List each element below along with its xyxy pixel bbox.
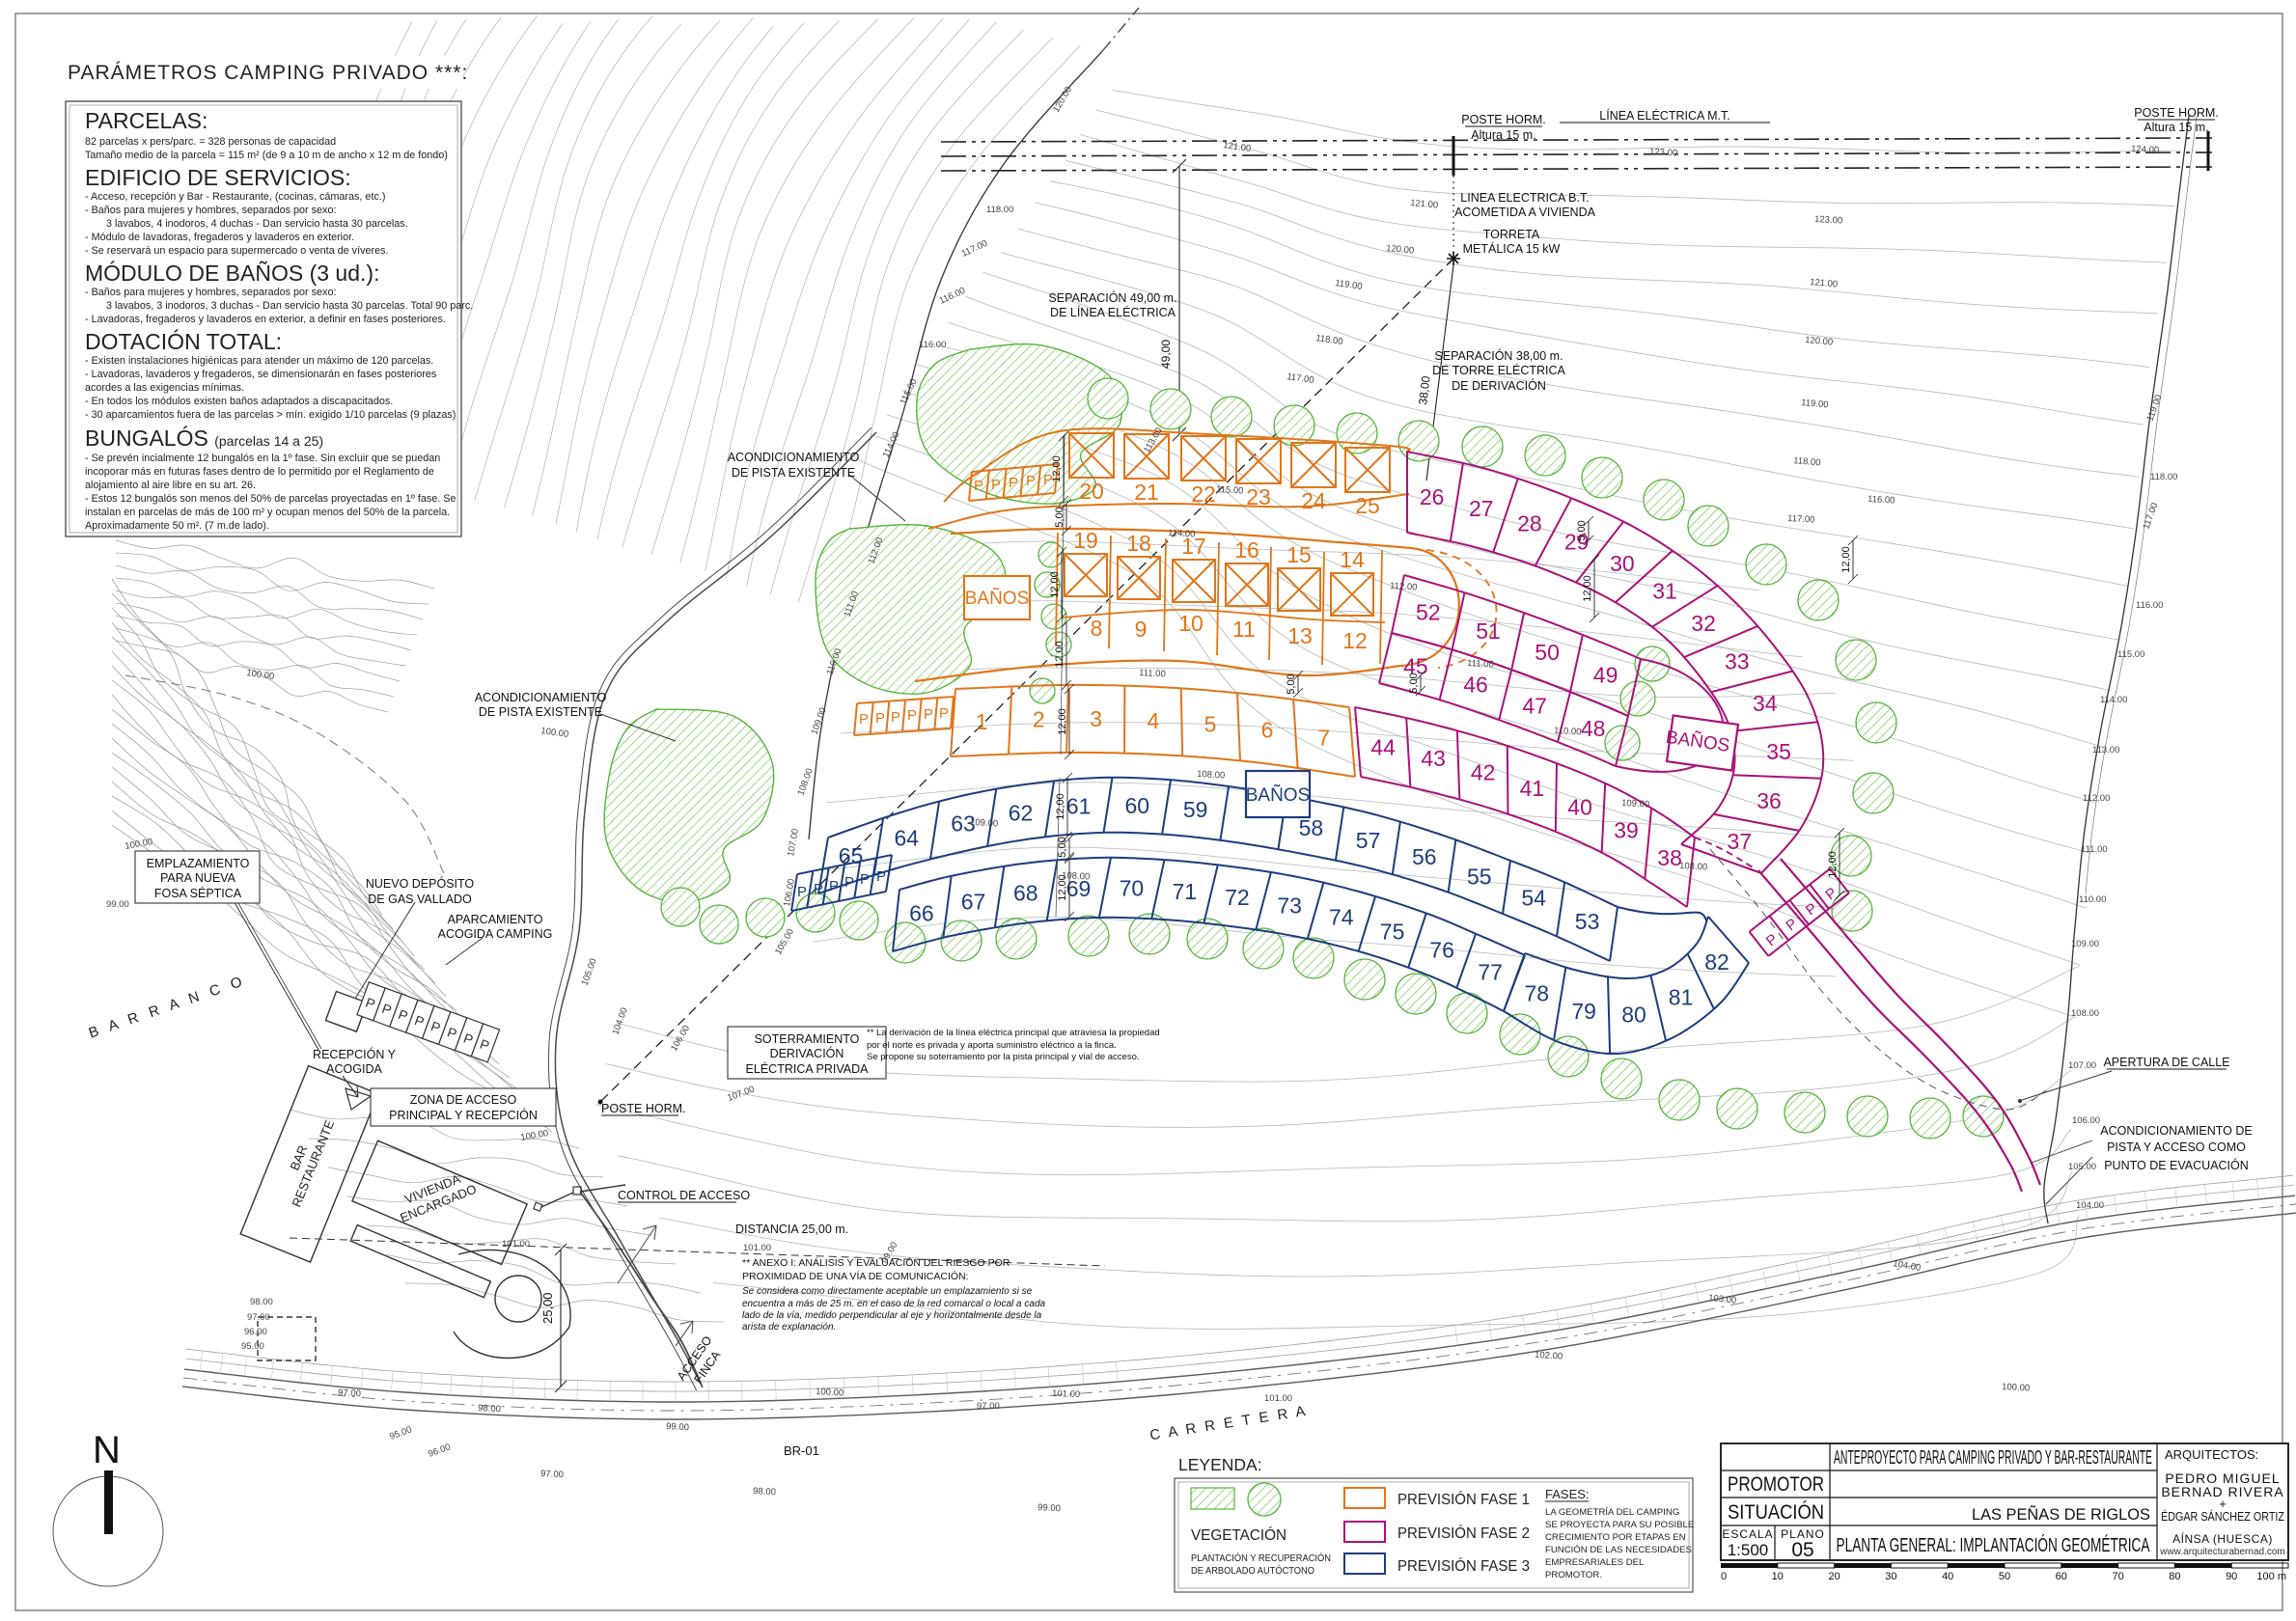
svg-text:FUNCIÓN DE LAS NECESIDADES: FUNCIÓN DE LAS NECESIDADES — [1545, 1545, 1692, 1555]
svg-text:11: 11 — [1232, 617, 1256, 642]
svg-text:ACONDICIONAMIENTO DE: ACONDICIONAMIENTO DE — [2100, 1124, 2252, 1138]
svg-text:40: 40 — [1567, 795, 1592, 820]
svg-text:99.00: 99.00 — [666, 1421, 689, 1433]
svg-text:DE TORRE ELÉCTRICA: DE TORRE ELÉCTRICA — [1432, 363, 1565, 377]
svg-text:12,00: 12,00 — [1051, 455, 1063, 482]
svg-text:- Lavadoras, lavaderos y frega: - Lavadoras, lavaderos y fregaderos, se … — [85, 369, 437, 380]
svg-text:115.00: 115.00 — [2117, 649, 2144, 660]
svg-text:116.00: 116.00 — [2136, 600, 2163, 611]
svg-text:56: 56 — [1412, 844, 1437, 869]
svg-text:ACOGIDA CAMPING: ACOGIDA CAMPING — [438, 927, 553, 941]
svg-text:DE GAS VALLADO: DE GAS VALLADO — [368, 893, 472, 906]
svg-text:P: P — [1026, 473, 1036, 489]
svg-text:CONTROL DE ACCESO: CONTROL DE ACCESO — [618, 1189, 750, 1202]
svg-text:METÁLICA 15 kW: METÁLICA 15 kW — [1463, 241, 1561, 256]
svg-text:ZONA DE ACCESO: ZONA DE ACCESO — [410, 1093, 517, 1107]
svg-text:97.00: 97.00 — [540, 1469, 564, 1480]
svg-text:APERTURA DE CALLE: APERTURA DE CALLE — [2103, 1056, 2229, 1069]
svg-text:PROMOTOR.: PROMOTOR. — [1545, 1570, 1602, 1580]
svg-text:SEPARACIÓN 49,00 m.: SEPARACIÓN 49,00 m. — [1048, 290, 1176, 305]
svg-text:101.00: 101.00 — [1264, 1393, 1292, 1404]
svg-text:114.00: 114.00 — [2100, 695, 2127, 705]
svg-text:5,00: 5,00 — [1057, 837, 1068, 857]
svg-text:ACOGIDA: ACOGIDA — [326, 1062, 382, 1076]
svg-text:73: 73 — [1277, 893, 1302, 918]
svg-text:12: 12 — [1342, 628, 1368, 653]
svg-text:3 lavabos, 4 inodoros, 4 ducha: 3 lavabos, 4 inodoros, 4 duchas - Dan se… — [106, 218, 408, 230]
svg-text:12,00: 12,00 — [1054, 641, 1065, 668]
svg-text:Se propone su soterramiento po: Se propone su soterramiento por la pista… — [867, 1052, 1140, 1062]
svg-text:1:500: 1:500 — [1728, 1541, 1769, 1559]
svg-text:123.00: 123.00 — [1649, 147, 1678, 159]
svg-text:PROMOTOR: PROMOTOR — [1728, 1473, 1824, 1496]
svg-text:- En todos los módulos existen: - En todos los módulos existen baños ada… — [85, 396, 393, 407]
svg-text:por el norte es privada y apor: por el norte es privada y aporta suminis… — [867, 1040, 1117, 1051]
svg-text:SE PROYECTA PARA SU POSIBLE: SE PROYECTA PARA SU POSIBLE — [1545, 1520, 1694, 1530]
svg-text:100.00: 100.00 — [2002, 1382, 2031, 1394]
svg-text:ACONDICIONAMIENTO: ACONDICIONAMIENTO — [475, 691, 607, 704]
svg-text:82: 82 — [1704, 949, 1729, 975]
svg-text:POSTE HORM.: POSTE HORM. — [2134, 106, 2219, 120]
svg-text:40: 40 — [1942, 1571, 1953, 1582]
svg-text:P: P — [860, 871, 870, 888]
svg-text:PLANTACIÓN Y RECUPERACIÓN: PLANTACIÓN Y RECUPERACIÓN — [1191, 1552, 1331, 1564]
svg-text:74: 74 — [1329, 904, 1354, 929]
svg-text:5,00: 5,00 — [1576, 520, 1588, 540]
svg-text:107.00: 107.00 — [2068, 1060, 2096, 1071]
svg-text:20: 20 — [1828, 1571, 1840, 1582]
svg-text:97.00: 97.00 — [338, 1387, 361, 1399]
svg-text:53: 53 — [1575, 909, 1600, 934]
svg-text:67: 67 — [961, 889, 986, 914]
svg-text:4: 4 — [1148, 708, 1160, 733]
svg-text:111.00: 111.00 — [1139, 668, 1166, 679]
svg-text:- Estos 12 bungalós son menos: - Estos 12 bungalós son menos del 50% de… — [85, 493, 456, 505]
svg-text:46: 46 — [1463, 672, 1488, 697]
svg-text:109.00: 109.00 — [2071, 939, 2099, 949]
svg-text:78: 78 — [1525, 981, 1550, 1006]
svg-text:DE DERIVACIÓN: DE DERIVACIÓN — [1452, 378, 1546, 393]
svg-text:PREVISIÓN FASE 1: PREVISIÓN FASE 1 — [1397, 1492, 1530, 1508]
svg-text:118.00: 118.00 — [2150, 472, 2177, 482]
svg-text:P: P — [939, 705, 949, 722]
svg-text:DOTACIÓN TOTAL:: DOTACIÓN TOTAL: — [85, 329, 282, 354]
svg-text:NUEVO DEPÓSITO: NUEVO DEPÓSITO — [366, 876, 475, 891]
svg-text:alojamiento al aire libre en s: alojamiento al aire libre en su art. 26. — [85, 480, 256, 491]
svg-text:EMPLAZAMIENTO: EMPLAZAMIENTO — [147, 857, 250, 870]
svg-text:30: 30 — [1610, 551, 1635, 576]
svg-text:21: 21 — [1134, 480, 1159, 505]
svg-text:50: 50 — [1999, 1571, 2010, 1582]
svg-text:lado de la vía, medido perpend: lado de la vía, medido perpendicular al … — [742, 1310, 1042, 1321]
svg-text:P: P — [924, 706, 933, 723]
svg-text:PARA NUEVA: PARA NUEVA — [160, 871, 236, 885]
svg-text:9: 9 — [1135, 617, 1148, 642]
svg-text:5,00: 5,00 — [1408, 673, 1420, 693]
svg-text:POSTE HORM.: POSTE HORM. — [1461, 113, 1546, 126]
svg-text:96.00: 96.00 — [244, 1327, 267, 1337]
svg-text:SITUACIÓN: SITUACIÓN — [1728, 1501, 1824, 1524]
svg-text:P: P — [991, 477, 1001, 493]
svg-text:12,00: 12,00 — [1827, 851, 1839, 878]
svg-text:SEPARACIÓN 38,00 m.: SEPARACIÓN 38,00 m. — [1434, 348, 1563, 363]
svg-text:110.00: 110.00 — [1554, 726, 1582, 737]
svg-text:48: 48 — [1581, 716, 1606, 741]
svg-text:49,00: 49,00 — [1159, 340, 1173, 369]
svg-text:www.arquitecturabernad.com: www.arquitecturabernad.com — [2159, 1547, 2285, 1557]
svg-text:108.00: 108.00 — [1062, 870, 1091, 883]
svg-text:124.00: 124.00 — [2131, 144, 2160, 156]
svg-text:5,00: 5,00 — [1054, 507, 1065, 527]
svg-text:- Existen instalaciones higién: - Existen instalaciones higiénicas para … — [85, 355, 433, 367]
svg-text:60: 60 — [1125, 793, 1150, 818]
svg-text:- Acceso, recepción y Bar - Re: - Acceso, recepción y Bar - Restaurante,… — [85, 191, 385, 203]
svg-text:APARCAMIENTO: APARCAMIENTO — [448, 913, 543, 926]
svg-text:98.00: 98.00 — [753, 1486, 776, 1497]
svg-text:SOTERRAMIENTO: SOTERRAMIENTO — [755, 1032, 860, 1046]
svg-text:98.00: 98.00 — [478, 1403, 501, 1415]
svg-text:0: 0 — [1721, 1571, 1727, 1582]
svg-text:LA GEOMETRÍA DEL CAMPING: LA GEOMETRÍA DEL CAMPING — [1545, 1507, 1679, 1518]
svg-text:P: P — [907, 707, 917, 724]
svg-text:- Se prevén incialmente 12 bun: - Se prevén incialmente 12 bungalós en l… — [85, 453, 440, 464]
svg-text:13: 13 — [1287, 623, 1313, 648]
svg-text:LEYENDA:: LEYENDA: — [1178, 1455, 1262, 1474]
svg-text:AÍNSA (HUESCA): AÍNSA (HUESCA) — [2172, 1531, 2273, 1546]
svg-text:101.00: 101.00 — [502, 1239, 530, 1250]
svg-text:100.00: 100.00 — [816, 1387, 844, 1399]
svg-text:116.00: 116.00 — [919, 340, 946, 350]
svg-text:DE ARBOLADO AUTÓCTONO: DE ARBOLADO AUTÓCTONO — [1191, 1564, 1314, 1577]
svg-text:LAS PEÑAS DE RIGLOS: LAS PEÑAS DE RIGLOS — [1972, 1505, 2150, 1524]
svg-text:PISTA Y ACCESO COMO: PISTA Y ACCESO COMO — [2107, 1140, 2246, 1154]
svg-text:112.00: 112.00 — [1390, 581, 1418, 592]
svg-text:DE LÍNEA ELÉCTRICA: DE LÍNEA ELÉCTRICA — [1050, 305, 1176, 319]
svg-text:12,00: 12,00 — [1049, 571, 1061, 598]
svg-text:Aproximadamente 50 m². (7 m.de: Aproximadamente 50 m². (7 m.de lado). — [85, 520, 269, 532]
svg-text:50: 50 — [1535, 640, 1560, 665]
svg-text:10: 10 — [1178, 611, 1203, 636]
svg-text:123.00: 123.00 — [1814, 214, 1843, 227]
svg-text:34: 34 — [1753, 691, 1778, 716]
svg-text:- 30 aparcamientos fuera de la: - 30 aparcamientos fuera de las parcelas… — [85, 409, 456, 421]
svg-text:111.00: 111.00 — [2081, 844, 2108, 855]
svg-text:109.00: 109.00 — [1621, 798, 1650, 810]
svg-text:FASES:: FASES: — [1545, 1487, 1590, 1501]
svg-text:ACOMETIDA A VIVIENDA: ACOMETIDA A VIVIENDA — [1454, 206, 1596, 219]
svg-text:PARÁMETROS CAMPING PRIVADO ***: PARÁMETROS CAMPING PRIVADO ***: — [68, 62, 468, 84]
svg-text:115.00: 115.00 — [1216, 484, 1244, 496]
svg-text:DE PISTA EXISTENTE: DE PISTA EXISTENTE — [479, 705, 602, 719]
svg-text:12,00: 12,00 — [1055, 793, 1066, 820]
svg-text:76: 76 — [1429, 938, 1454, 963]
svg-text:P: P — [875, 710, 885, 727]
svg-text:6: 6 — [1261, 718, 1274, 743]
svg-text:P: P — [797, 884, 807, 900]
svg-text:25,00: 25,00 — [540, 1292, 555, 1324]
svg-text:28: 28 — [1517, 510, 1542, 536]
svg-text:68: 68 — [1013, 881, 1038, 906]
svg-text:39: 39 — [1614, 817, 1639, 842]
svg-text:RECEPCIÓN Y: RECEPCIÓN Y — [313, 1047, 397, 1061]
svg-text:VEGETACIÓN: VEGETACIÓN — [1191, 1525, 1286, 1544]
svg-text:15: 15 — [1286, 542, 1312, 567]
svg-text:P: P — [859, 711, 869, 728]
svg-text:12,00: 12,00 — [1582, 575, 1593, 602]
svg-text:3 lavabos, 3 inodoros, 3 ducha: 3 lavabos, 3 inodoros, 3 duchas - Dan se… — [106, 300, 473, 312]
svg-text:80: 80 — [2169, 1571, 2180, 1582]
svg-text:49: 49 — [1593, 663, 1618, 688]
svg-text:57: 57 — [1356, 828, 1381, 853]
svg-text:116.00: 116.00 — [1867, 494, 1895, 506]
svg-text:MÓDULO DE BAÑOS (3 ud.):: MÓDULO DE BAÑOS (3 ud.): — [85, 261, 379, 286]
svg-text:ARQUITECTOS:: ARQUITECTOS: — [2165, 1447, 2258, 1462]
svg-text:3: 3 — [1090, 706, 1102, 731]
svg-text:P: P — [891, 709, 900, 726]
svg-text:106.00: 106.00 — [2072, 1115, 2100, 1126]
svg-text:- Lavadoras, fregaderos y lava: - Lavadoras, fregaderos y lavaderos en e… — [85, 314, 446, 325]
svg-text:encuentra a más de 25 m. en el: encuentra a más de 25 m. en el caso de l… — [742, 1299, 1046, 1309]
svg-text:97.00: 97.00 — [977, 1401, 1000, 1412]
svg-text:PUNTO DE EVACUACIÓN: PUNTO DE EVACUACIÓN — [2104, 1158, 2249, 1172]
svg-text:99.00: 99.00 — [1037, 1502, 1061, 1514]
svg-text:90: 90 — [2226, 1571, 2237, 1582]
svg-text:72: 72 — [1225, 885, 1250, 910]
svg-text:PROXIMIDAD DE UNA VÍA DE COMUN: PROXIMIDAD DE UNA VÍA DE COMUNICACIÓN: — [742, 1270, 969, 1282]
svg-text:95.00: 95.00 — [241, 1341, 264, 1352]
svg-text:DE PISTA EXISTENTE: DE PISTA EXISTENTE — [732, 466, 855, 480]
svg-text:CRECIMIENTO POR ETAPAS EN: CRECIMIENTO POR ETAPAS EN — [1545, 1532, 1686, 1543]
svg-text:8: 8 — [1091, 616, 1103, 641]
svg-text:71: 71 — [1173, 879, 1198, 904]
svg-text:P: P — [974, 478, 983, 494]
svg-text:100 m: 100 m — [2256, 1571, 2286, 1582]
svg-text:38: 38 — [1657, 845, 1682, 870]
svg-text:DISTANCIA 25,00 m.: DISTANCIA 25,00 m. — [735, 1223, 848, 1236]
svg-text:7: 7 — [1317, 726, 1330, 751]
svg-text:104.00: 104.00 — [2076, 1200, 2104, 1211]
svg-text:33: 33 — [1725, 648, 1750, 673]
svg-text:LÍNEA ELÉCTRICA M.T.: LÍNEA ELÉCTRICA M.T. — [1599, 108, 1729, 123]
svg-text:102.00: 102.00 — [1535, 1350, 1563, 1362]
svg-text:05: 05 — [1791, 1539, 1813, 1561]
svg-text:101.00: 101.00 — [743, 1243, 771, 1253]
svg-text:ACONDICIONAMIENTO: ACONDICIONAMIENTO — [728, 451, 860, 464]
svg-text:61: 61 — [1066, 794, 1092, 819]
svg-text:35: 35 — [1766, 739, 1791, 764]
svg-text:42: 42 — [1471, 759, 1496, 784]
svg-text:109.00: 109.00 — [970, 817, 999, 830]
svg-text:31: 31 — [1652, 578, 1677, 603]
svg-text:EMPRESARIALES DEL: EMPRESARIALES DEL — [1545, 1557, 1645, 1568]
svg-text:108.00: 108.00 — [1197, 769, 1226, 782]
svg-text:55: 55 — [1467, 864, 1492, 889]
svg-text:Se considera como directamente: Se considera como directamente aceptable… — [742, 1286, 1033, 1297]
svg-text:51: 51 — [1476, 618, 1501, 644]
svg-text:- Baños para mujeres y hombres: - Baños para mujeres y hombres, separado… — [85, 287, 336, 298]
svg-text:PLANTA GENERAL: IMPLANTACIÓN G: PLANTA GENERAL: IMPLANTACIÓN GEOMÉTRICA — [1837, 1534, 2150, 1556]
svg-text:98.00: 98.00 — [250, 1297, 273, 1307]
svg-text:108.00: 108.00 — [1679, 861, 1708, 873]
svg-text:52: 52 — [1416, 600, 1441, 625]
svg-text:2: 2 — [1033, 707, 1045, 732]
svg-text:75: 75 — [1380, 920, 1405, 945]
svg-text:60: 60 — [2056, 1571, 2067, 1582]
svg-text:- Se reservará un espacio para: - Se reservará un espacio para supermerc… — [85, 245, 388, 257]
svg-text:BR-01: BR-01 — [784, 1443, 819, 1458]
svg-text:Altura 15 m.: Altura 15 m. — [1471, 128, 1535, 142]
svg-text:19: 19 — [1073, 528, 1098, 553]
svg-text:ELÉCTRICA PRIVADA: ELÉCTRICA PRIVADA — [746, 1061, 870, 1076]
svg-text:12,00: 12,00 — [1057, 708, 1068, 735]
svg-text:ESCALA: ESCALA — [1722, 1527, 1773, 1541]
svg-text:arista de explanación.: arista de explanación. — [742, 1322, 836, 1333]
svg-text:BAÑOS: BAÑOS — [1246, 784, 1311, 806]
svg-text:70: 70 — [1120, 875, 1145, 900]
svg-text:16: 16 — [1234, 537, 1259, 563]
svg-text:P: P — [829, 878, 839, 894]
svg-text:DERIVACIÓN: DERIVACIÓN — [770, 1046, 844, 1060]
svg-text:37: 37 — [1728, 829, 1753, 854]
svg-text:54: 54 — [1521, 886, 1546, 911]
svg-text:18: 18 — [1126, 531, 1151, 556]
svg-text:25: 25 — [1355, 493, 1380, 518]
svg-text:44: 44 — [1370, 734, 1396, 759]
svg-text:BAÑOS: BAÑOS — [965, 588, 1030, 609]
svg-text:incoporar más en futuras fases: incoporar más en futuras fases dentro de… — [85, 466, 434, 478]
svg-text:117.00: 117.00 — [1787, 513, 1815, 525]
svg-text:LINEA ELECTRICA B.T.: LINEA ELECTRICA B.T. — [1460, 191, 1589, 205]
svg-text:** La derivación de la línea e: ** La derivación de la línea eléctrica p… — [867, 1028, 1160, 1038]
svg-text:P: P — [876, 868, 886, 885]
svg-text:43: 43 — [1421, 746, 1446, 771]
svg-text:101.00: 101.00 — [1052, 1388, 1080, 1400]
svg-text:** ANEXO I: ANÁLISIS Y EV: ** ANEXO I: ANÁLISIS Y EVALUACIÓN DEL RI… — [742, 1256, 1010, 1269]
svg-text:114.00: 114.00 — [1168, 528, 1196, 539]
svg-text:111.00: 111.00 — [1467, 658, 1494, 670]
svg-text:41: 41 — [1520, 776, 1545, 801]
svg-text:TORRETA: TORRETA — [1483, 228, 1540, 241]
svg-text:108.00: 108.00 — [2071, 1008, 2099, 1019]
svg-text:instalan en parcelas de más de: instalan en parcelas de más de 100 m² y … — [85, 507, 450, 518]
svg-text:- Baños para mujeres y hombres: - Baños para mujeres y hombres, separado… — [85, 205, 336, 216]
svg-text:79: 79 — [1571, 999, 1596, 1024]
svg-text:77: 77 — [1478, 959, 1503, 984]
svg-text:58: 58 — [1299, 815, 1324, 840]
svg-text:P: P — [1009, 475, 1018, 491]
svg-text:ANTEPROYECTO PARA CAMPING PRIV: ANTEPROYECTO PARA CAMPING PRIVADO Y BAR-… — [1834, 1447, 2152, 1469]
svg-text:99.00: 99.00 — [106, 899, 129, 910]
svg-text:118.00: 118.00 — [986, 205, 1013, 215]
svg-text:FOSA SÉPTICA: FOSA SÉPTICA — [154, 886, 242, 900]
svg-text:112.00: 112.00 — [2083, 793, 2110, 804]
svg-text:PARCELAS:: PARCELAS: — [85, 108, 207, 133]
svg-text:26: 26 — [1420, 484, 1445, 509]
svg-text:5,00: 5,00 — [1286, 673, 1297, 694]
svg-text:97.00: 97.00 — [247, 1312, 270, 1323]
svg-text:1: 1 — [976, 709, 988, 734]
svg-text:Tamaño medio de la parcela = 1: Tamaño medio de la parcela = 115 m² (de … — [85, 150, 448, 161]
svg-text:22: 22 — [1191, 481, 1216, 507]
svg-text:110.00: 110.00 — [2079, 894, 2106, 905]
svg-text:32: 32 — [1691, 611, 1716, 636]
svg-text:PRINCIPAL Y RECEPCIÓN: PRINCIPAL Y RECEPCIÓN — [389, 1108, 538, 1122]
svg-text:36: 36 — [1757, 788, 1782, 813]
svg-text:70: 70 — [2112, 1571, 2123, 1582]
svg-text:20: 20 — [1079, 479, 1104, 504]
svg-text:PREVISIÓN FASE 2: PREVISIÓN FASE 2 — [1397, 1525, 1530, 1542]
svg-text:POSTE HORM.: POSTE HORM. — [601, 1102, 686, 1115]
svg-text:105.00: 105.00 — [2068, 1162, 2096, 1172]
svg-text:5: 5 — [1204, 712, 1217, 737]
svg-text:30: 30 — [1885, 1571, 1896, 1582]
svg-text:14: 14 — [1340, 547, 1365, 572]
svg-text:24: 24 — [1301, 488, 1326, 513]
svg-text:66: 66 — [909, 901, 934, 926]
svg-text:- Módulo de lavadoras, fregade: - Módulo de lavadoras, fregaderos y lava… — [85, 232, 354, 243]
svg-text:64: 64 — [895, 826, 920, 851]
svg-text:P: P — [814, 881, 823, 897]
svg-text:Altura 15 m.: Altura 15 m. — [2144, 121, 2208, 134]
svg-text:P: P — [844, 874, 854, 891]
svg-text:10: 10 — [1772, 1571, 1784, 1582]
svg-text:80: 80 — [1621, 1002, 1646, 1027]
svg-text:62: 62 — [1009, 800, 1034, 825]
svg-text:acordes a las exigencias mínim: acordes a las exigencias mínimas. — [85, 382, 244, 394]
svg-text:81: 81 — [1669, 984, 1694, 1009]
svg-text:27: 27 — [1469, 496, 1494, 521]
svg-text:12,00: 12,00 — [1840, 546, 1852, 573]
svg-text:N: N — [93, 1429, 121, 1471]
svg-text:82 parcelas x pers/parc. = 328: 82 parcelas x pers/parc. = 328 personas … — [85, 136, 336, 148]
svg-text:59: 59 — [1183, 797, 1208, 822]
svg-text:113.00: 113.00 — [2092, 745, 2119, 756]
svg-text:ÉDGAR SÁNCHEZ ORTIZ: ÉDGAR SÁNCHEZ ORTIZ — [2161, 1509, 2284, 1524]
svg-text:PREVISIÓN FASE 3: PREVISIÓN FASE 3 — [1397, 1558, 1530, 1575]
svg-text:47: 47 — [1522, 693, 1547, 718]
svg-text:EDIFICIO DE SERVICIOS:: EDIFICIO DE SERVICIOS: — [85, 165, 351, 190]
